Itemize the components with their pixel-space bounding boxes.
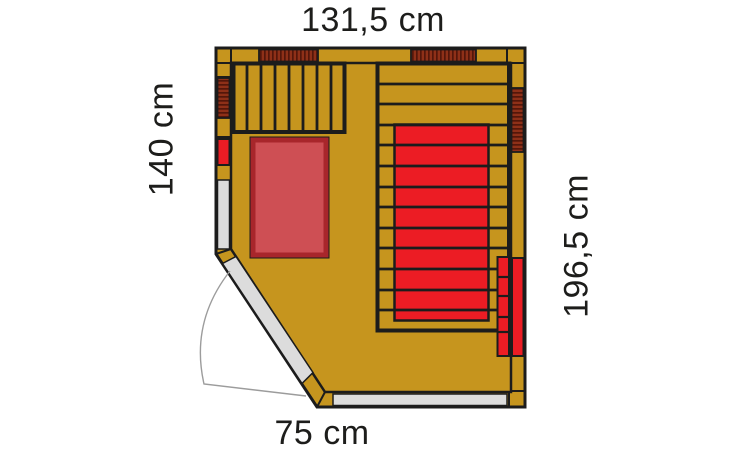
emitter-top-left	[259, 50, 318, 62]
bench-left	[234, 64, 345, 133]
dimension-width-top: 131,5 cm	[301, 1, 445, 40]
bench-right	[378, 64, 510, 331]
dimension-depth-left: 140 cm	[143, 82, 182, 197]
left-wall-heater-panel	[218, 139, 230, 165]
dimension-door-bottom: 75 cm	[274, 414, 369, 453]
dimension-depth-right: 196,5 cm	[558, 174, 597, 318]
floor-mat	[250, 137, 329, 258]
sauna-plan-figure: 131,5 cm 140 cm 196,5 cm 75 cm	[0, 0, 730, 456]
emitter-right-wall	[512, 88, 524, 152]
left-wall-glass	[218, 180, 230, 249]
bottom-wall-glass	[333, 394, 507, 406]
emitter-left-wall	[218, 78, 230, 118]
bench-left-slats	[247, 65, 331, 131]
sauna-floor-plan	[0, 0, 730, 456]
emitter-top-right	[411, 50, 476, 62]
